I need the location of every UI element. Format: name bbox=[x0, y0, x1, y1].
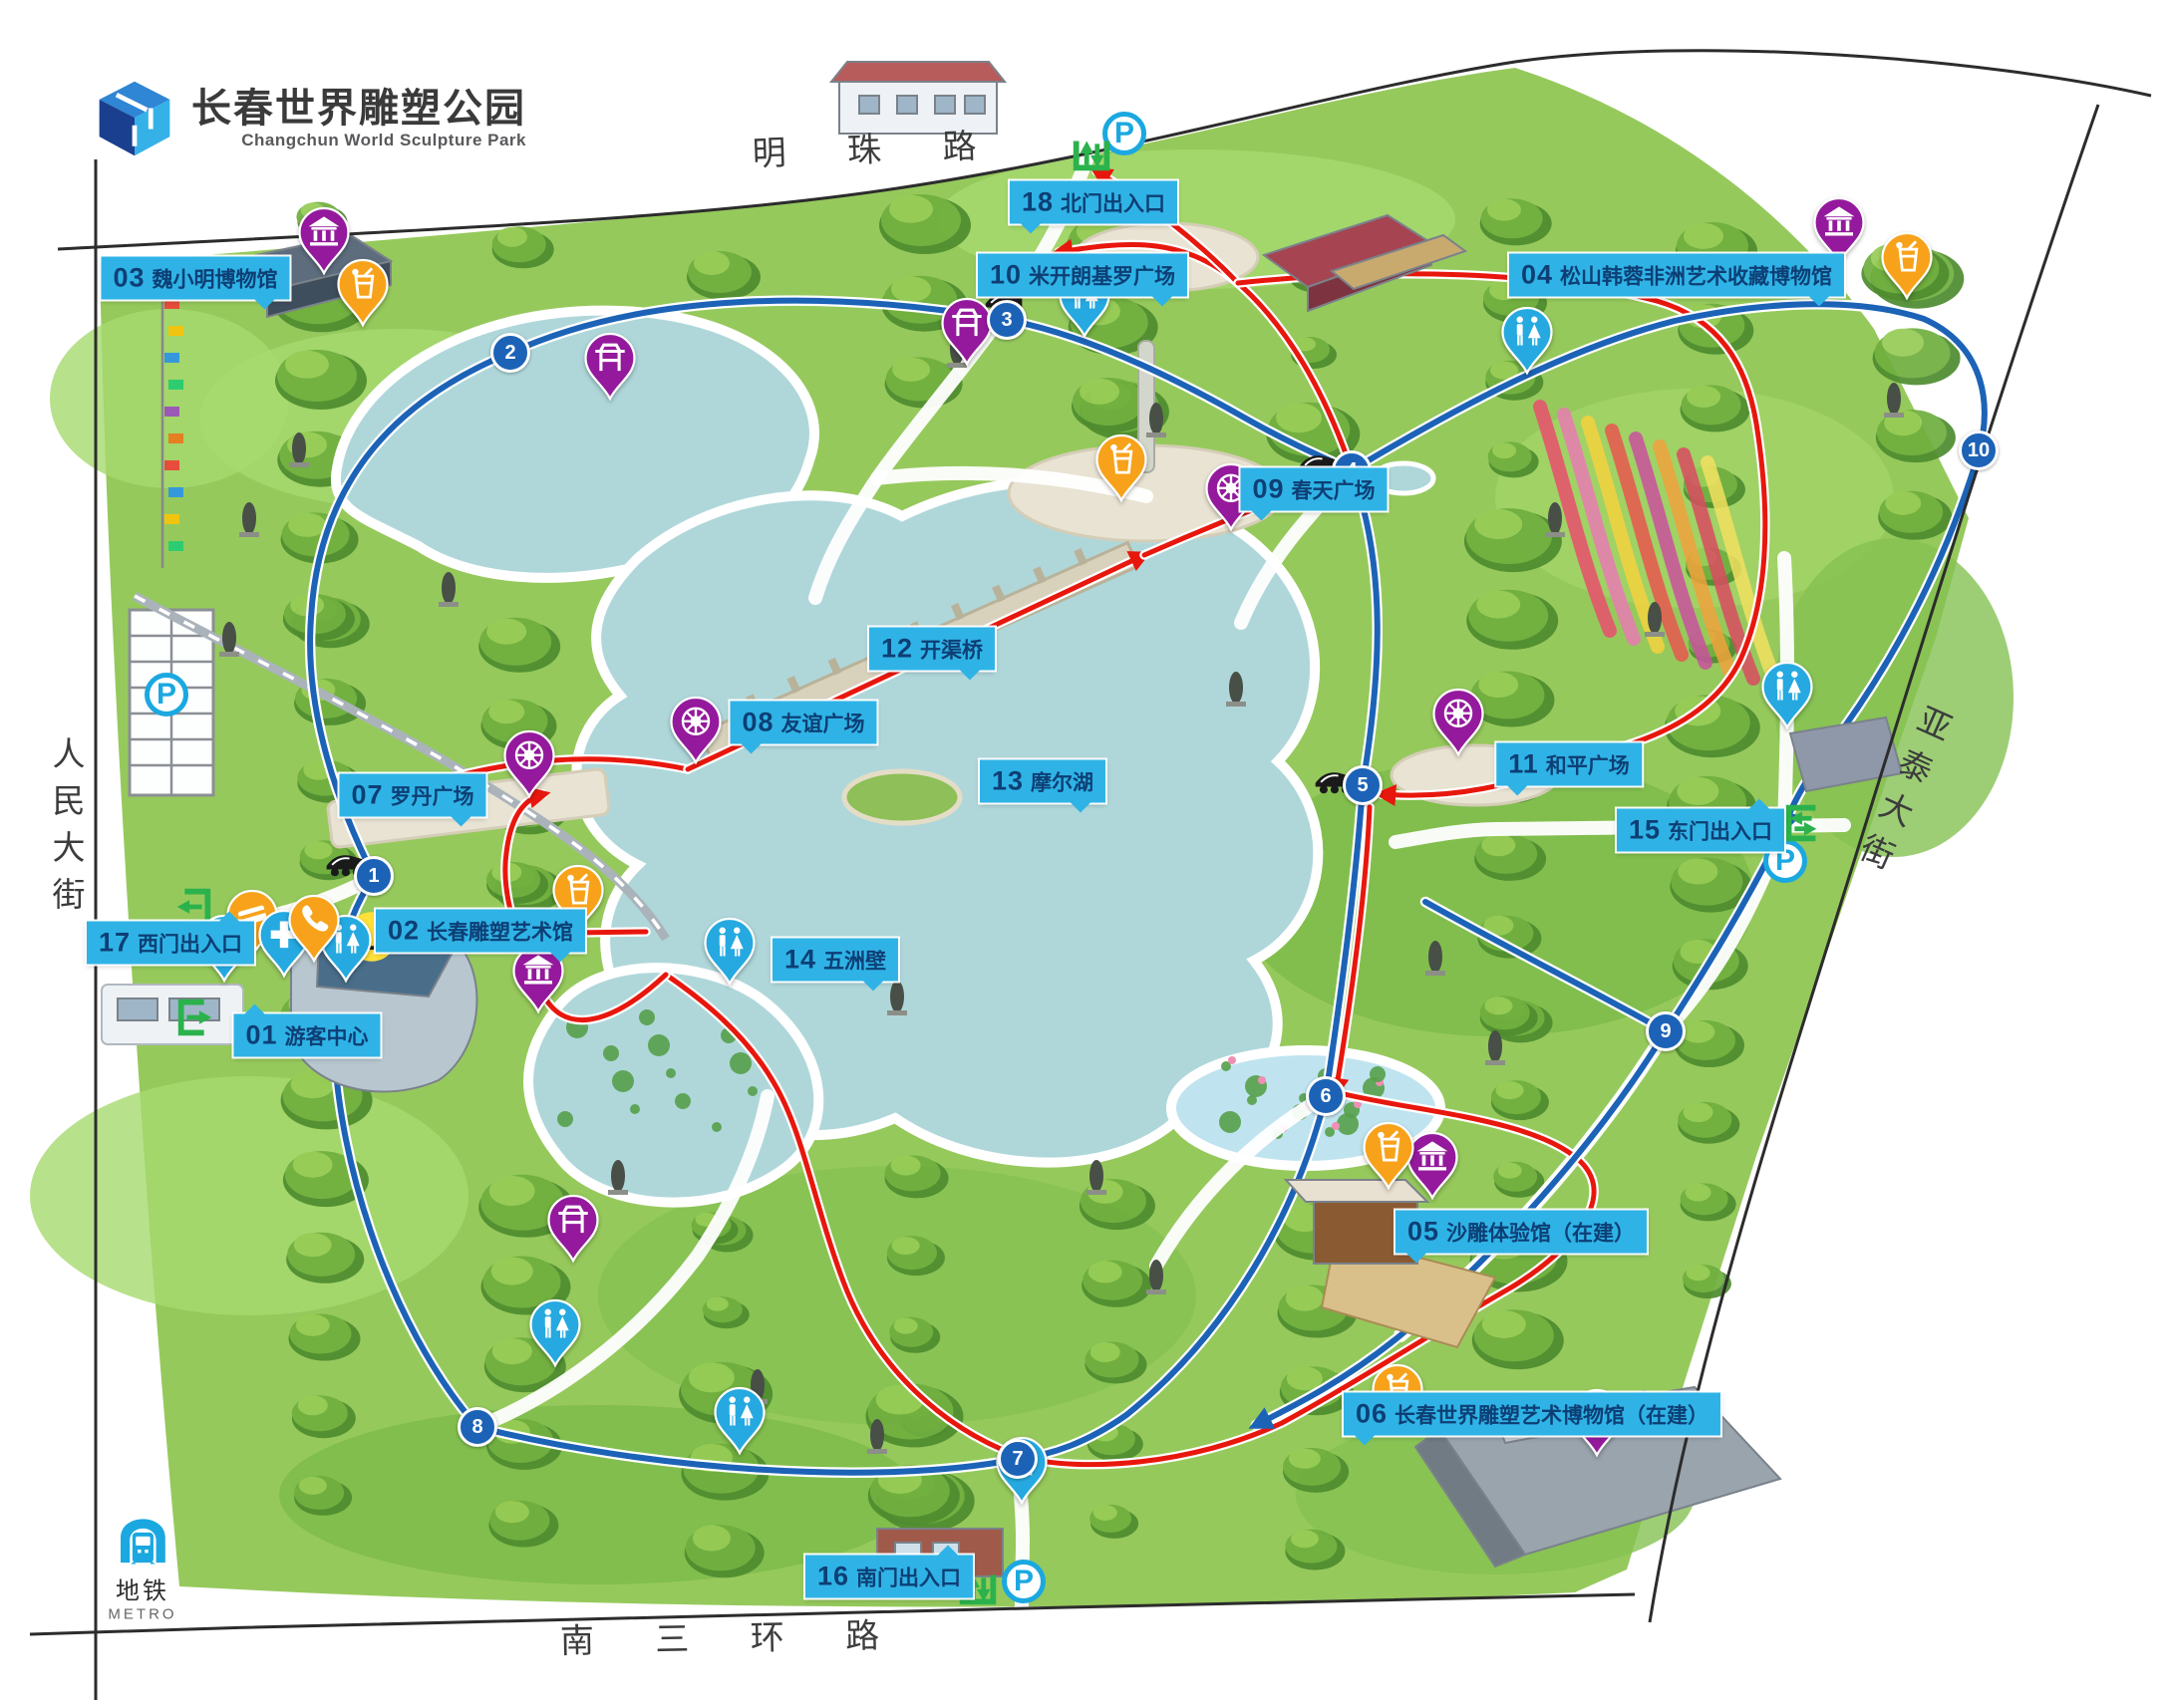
poi-number: 17 bbox=[99, 928, 131, 958]
poi-name: 长春雕塑艺术馆 bbox=[427, 922, 573, 945]
poi-label-16: 16南门出入口 bbox=[805, 1556, 973, 1598]
poi-number: 15 bbox=[1629, 815, 1661, 845]
poi-label-06: 06长春世界雕塑艺术博物馆（在建） bbox=[1344, 1393, 1720, 1436]
route-marker-3: 3 bbox=[987, 300, 1027, 340]
route-marker-10: 10 bbox=[1959, 430, 1999, 470]
sculpture-pin-icon bbox=[1430, 687, 1486, 756]
route-marker-7: 7 bbox=[998, 1439, 1038, 1479]
pavilion-pin-icon bbox=[582, 331, 638, 401]
drink-pin-icon bbox=[1879, 230, 1935, 300]
road-label-4: 亚泰大街 bbox=[1841, 697, 1961, 887]
poi-number: 11 bbox=[1508, 749, 1539, 779]
toilet-pin-icon bbox=[527, 1297, 583, 1367]
poi-name: 长春世界雕塑艺术博物馆（在建） bbox=[1395, 1405, 1708, 1428]
poi-name: 罗丹广场 bbox=[391, 786, 474, 809]
poi-label-15: 15东门出入口 bbox=[1617, 809, 1784, 852]
poi-name: 东门出入口 bbox=[1668, 821, 1772, 844]
poi-label-13: 13摩尔湖 bbox=[980, 760, 1105, 803]
phone-pin-icon bbox=[286, 893, 342, 963]
poi-label-18: 18北门出入口 bbox=[1010, 181, 1177, 224]
poi-label-03: 03魏小明博物馆 bbox=[101, 257, 289, 300]
poi-number: 14 bbox=[784, 945, 816, 975]
poi-label-14: 14五洲壁 bbox=[773, 939, 898, 982]
metro-station: 地铁 METRO bbox=[108, 1507, 176, 1623]
poi-name: 沙雕体验馆（在建） bbox=[1446, 1223, 1635, 1246]
route-marker-2: 2 bbox=[490, 333, 530, 373]
metro-label-zh: 地铁 bbox=[108, 1571, 176, 1606]
poi-label-02: 02长春雕塑艺术馆 bbox=[376, 910, 585, 953]
parking-icon: P bbox=[1002, 1560, 1046, 1603]
poi-name: 春天广场 bbox=[1292, 480, 1376, 503]
poi-label-07: 07罗丹广场 bbox=[339, 774, 485, 817]
metro-label-en: METRO bbox=[108, 1606, 176, 1623]
route-marker-5: 5 bbox=[1343, 765, 1383, 805]
parking-p: P bbox=[145, 673, 188, 716]
poi-number: 04 bbox=[1521, 260, 1553, 290]
drink-pin-icon bbox=[1361, 1120, 1416, 1190]
road-label-1: 明 珠 路 bbox=[752, 118, 1003, 175]
route-marker-8: 8 bbox=[458, 1407, 497, 1447]
sculpture-pin-icon bbox=[501, 728, 557, 798]
poi-label-10: 10米开朗基罗广场 bbox=[978, 254, 1187, 297]
poi-label-04: 04松山韩蓉非洲艺术收藏博物馆 bbox=[1509, 254, 1844, 297]
toilet-pin-icon bbox=[712, 1385, 768, 1455]
poi-number: 09 bbox=[1252, 474, 1284, 504]
poi-number: 02 bbox=[388, 916, 420, 946]
poi-number: 08 bbox=[742, 708, 774, 737]
poi-label-01: 01游客中心 bbox=[233, 1014, 380, 1057]
gate-updown-icon bbox=[1069, 130, 1114, 175]
parking-icon: P bbox=[145, 673, 188, 716]
parking-p: P bbox=[1002, 1560, 1046, 1603]
poi-number: 13 bbox=[992, 766, 1024, 796]
poi-label-05: 05沙雕体验馆（在建） bbox=[1396, 1211, 1647, 1254]
route-marker-1: 1 bbox=[354, 856, 394, 896]
poi-number: 18 bbox=[1022, 187, 1054, 217]
poi-name: 北门出入口 bbox=[1061, 193, 1165, 216]
poi-label-08: 08友谊广场 bbox=[730, 702, 876, 744]
poi-name: 开渠桥 bbox=[920, 640, 983, 663]
route-marker-9: 9 bbox=[1646, 1011, 1686, 1051]
park-name-en: Changchun World Sculpture Park bbox=[191, 131, 526, 150]
poi-name: 米开朗基罗广场 bbox=[1029, 266, 1175, 289]
poi-number: 16 bbox=[817, 1562, 849, 1591]
poi-name: 游客中心 bbox=[285, 1026, 369, 1049]
drink-pin-icon bbox=[335, 257, 391, 327]
poi-label-09: 09春天广场 bbox=[1240, 468, 1387, 511]
poi-number: 05 bbox=[1407, 1217, 1439, 1247]
pavilion-pin-icon bbox=[545, 1193, 601, 1263]
park-name-zh: 长春世界雕塑公园 bbox=[191, 87, 526, 131]
park-logo: 长春世界雕塑公园 Changchun World Sculpture Park bbox=[92, 76, 526, 161]
sculpture-pin-icon bbox=[668, 695, 724, 764]
poi-name: 西门出入口 bbox=[138, 934, 242, 957]
route-marker-6: 6 bbox=[1306, 1076, 1346, 1116]
poi-name: 和平广场 bbox=[1546, 755, 1630, 778]
toilet-pin-icon bbox=[702, 916, 758, 986]
toilet-pin-icon bbox=[1499, 305, 1555, 375]
poi-name: 摩尔湖 bbox=[1031, 772, 1093, 795]
gate-leftright-icon bbox=[1779, 800, 1825, 846]
poi-number: 01 bbox=[245, 1020, 277, 1050]
poi-label-11: 11和平广场 bbox=[1496, 743, 1642, 786]
pavilion-pin-icon bbox=[939, 296, 995, 366]
poi-number: 06 bbox=[1356, 1399, 1388, 1429]
drink-pin-icon bbox=[1093, 432, 1149, 502]
park-map: 明 珠 路南 三 环 路人民大街亚泰大街01游客中心02长春雕塑艺术馆03魏小明… bbox=[0, 0, 2172, 1708]
poi-label-17: 17西门出入口 bbox=[87, 922, 254, 965]
poi-name: 五洲壁 bbox=[823, 951, 886, 974]
metro-icon bbox=[111, 1507, 174, 1565]
logo-cube-icon bbox=[92, 76, 177, 161]
gate-entry-icon bbox=[173, 995, 219, 1040]
road-label-2: 南 三 环 路 bbox=[559, 1607, 905, 1662]
road-label-3: 人民大街 bbox=[42, 736, 90, 924]
poi-number: 10 bbox=[990, 260, 1022, 290]
map-overlay: 明 珠 路南 三 环 路人民大街亚泰大街01游客中心02长春雕塑艺术馆03魏小明… bbox=[0, 0, 2172, 1708]
poi-name: 友谊广场 bbox=[781, 713, 865, 736]
poi-name: 魏小明博物馆 bbox=[153, 269, 278, 292]
poi-number: 12 bbox=[881, 634, 913, 664]
toilet-pin-icon bbox=[1759, 660, 1815, 729]
poi-number: 07 bbox=[351, 780, 383, 810]
poi-label-12: 12开渠桥 bbox=[869, 628, 995, 671]
poi-number: 03 bbox=[113, 263, 145, 293]
poi-name: 南门出入口 bbox=[856, 1567, 961, 1590]
poi-name: 松山韩蓉非洲艺术收藏博物馆 bbox=[1560, 266, 1832, 289]
